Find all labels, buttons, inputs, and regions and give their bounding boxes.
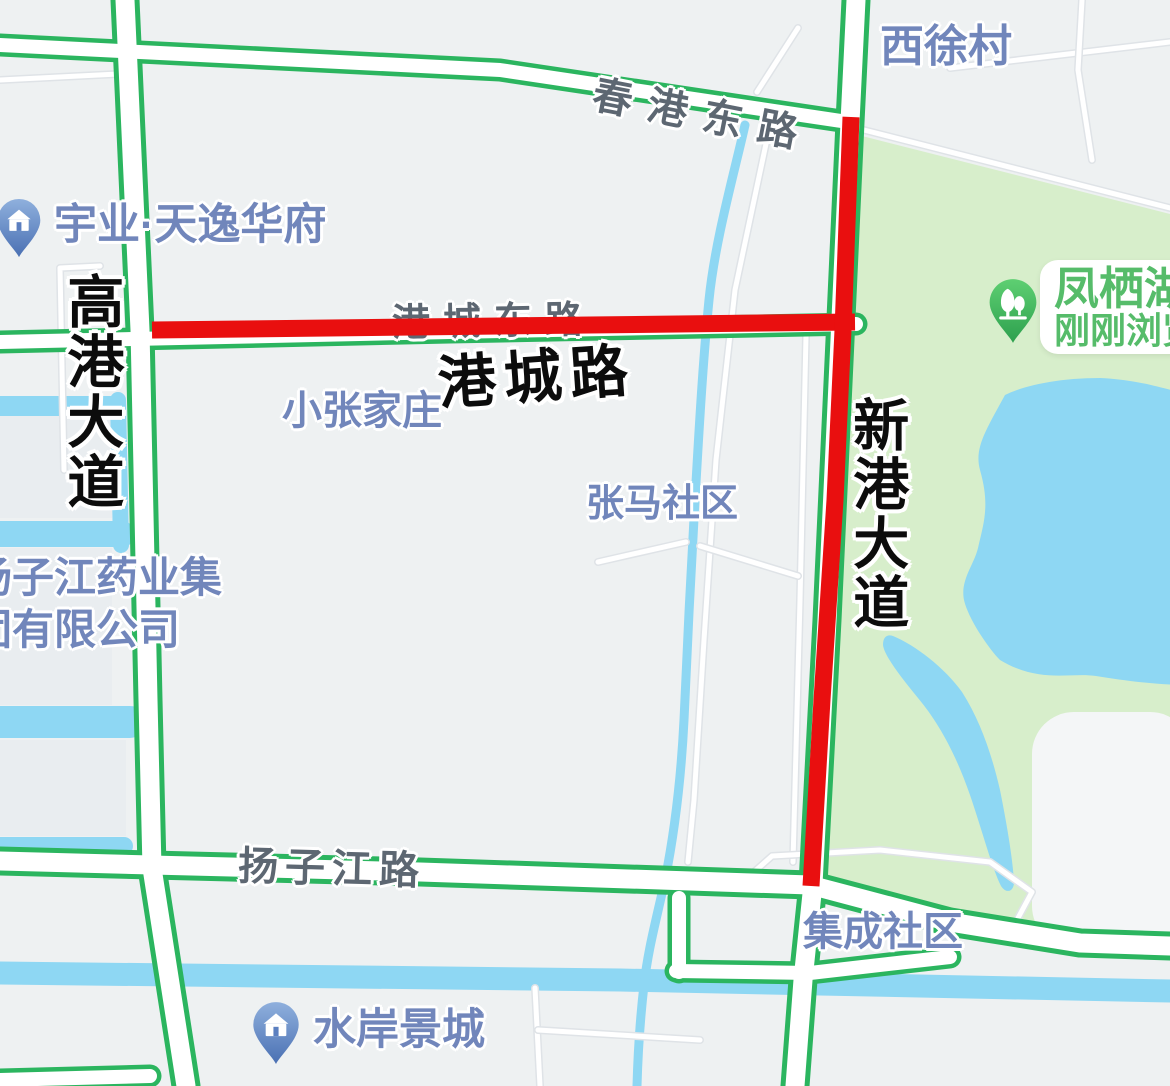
place-label-zhangma-community: 张马社区 [586, 485, 738, 525]
place-label-pharma-line1: 扬子江药业集 [0, 556, 222, 600]
place-label-shuian-jingcheng: 水岸景城 [313, 1008, 485, 1053]
stream [637, 125, 745, 1086]
lake [963, 378, 1170, 685]
road-label-gaogang-avenue: 高港大道 [60, 272, 120, 512]
plaza-area [1032, 712, 1170, 948]
building-block [0, 740, 126, 836]
map-canvas[interactable] [0, 0, 1170, 1086]
residence-pin-icon[interactable] [0, 197, 44, 259]
poi-card-subtitle: 刚刚浏览 [1054, 311, 1170, 351]
road-label-gangcheng-east: 港城东路 [392, 301, 597, 344]
place-label-pharma-line2: 团有限公司 [0, 608, 180, 652]
place-label-xiaozhangjiazhuang: 小张家庄 [282, 390, 442, 432]
poi-card-fengxihu[interactable]: 凤栖湖 刚刚浏览 [1040, 260, 1170, 354]
poi-card-title: 凤栖湖 [1054, 266, 1170, 311]
road-label-xingang-avenue: 新港大道 [847, 396, 906, 632]
park-pin-icon[interactable] [986, 277, 1040, 345]
residence-pin-icon[interactable] [250, 1000, 302, 1066]
place-label-yuye-tianyi: 宇业·天逸华府 [54, 203, 326, 248]
road-label-yangzijiang: 扬子江路 [237, 846, 426, 893]
place-label-xixu-village: 西徐村 [880, 24, 1012, 70]
map-viewport[interactable]: 港城东路 春港东路 扬子江路 高港大道 新港大道 港城路 西徐村 宇业·天逸华府… [0, 0, 1170, 1086]
road-label-gangcheng-big: 港城路 [436, 341, 638, 416]
place-label-jicheng-community: 集成社区 [803, 911, 963, 953]
